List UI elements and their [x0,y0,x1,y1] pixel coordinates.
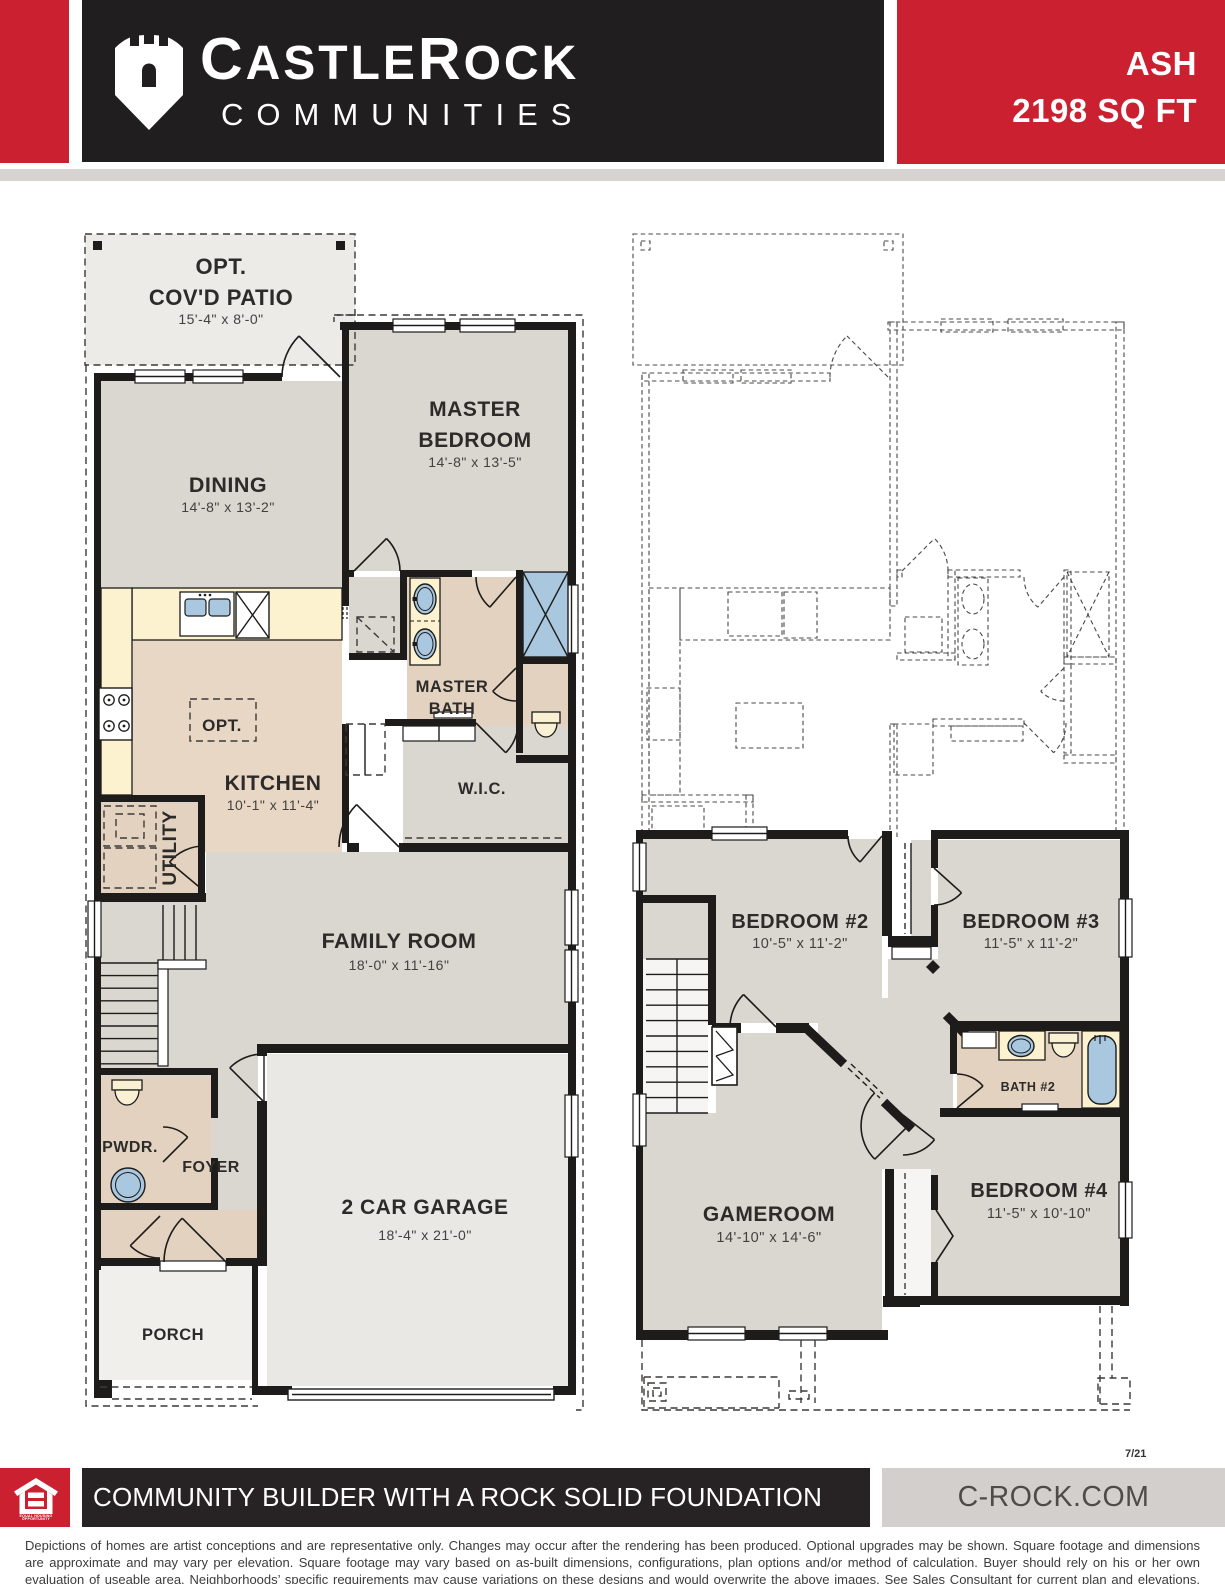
svg-text:MASTER: MASTER [416,678,489,696]
svg-text:MASTER: MASTER [429,398,521,421]
svg-text:10'-5" x 11'-2": 10'-5" x 11'-2" [752,936,848,952]
svg-text:PWDR.: PWDR. [102,1139,158,1156]
svg-text:UTILITY: UTILITY [160,810,181,885]
svg-text:PORCH: PORCH [142,1326,204,1344]
svg-text:10'-1" x 11'-4": 10'-1" x 11'-4" [227,797,320,813]
svg-text:2 CAR GARAGE: 2 CAR GARAGE [341,1196,508,1219]
svg-text:BATH: BATH [429,700,476,718]
svg-text:FOYER: FOYER [182,1159,240,1176]
svg-text:14'-8" x 13'-5": 14'-8" x 13'-5" [428,454,522,470]
svg-text:DINING: DINING [189,473,267,497]
svg-text:OPT.: OPT. [196,254,247,279]
svg-text:OPT.: OPT. [202,716,242,735]
svg-text:14'-8" x 13'-2": 14'-8" x 13'-2" [181,499,275,515]
svg-text:BEDROOM #3: BEDROOM #3 [962,911,1099,933]
svg-text:11'-5" x 10'-10": 11'-5" x 10'-10" [987,1206,1091,1222]
svg-text:OPPORTUNITY: OPPORTUNITY [22,1517,51,1520]
svg-text:BEDROOM: BEDROOM [418,429,531,452]
svg-text:GAMEROOM: GAMEROOM [703,1203,835,1226]
svg-text:W.I.C.: W.I.C. [458,780,506,798]
svg-text:BEDROOM #2: BEDROOM #2 [731,911,868,933]
svg-text:18'-0" x 11'-16": 18'-0" x 11'-16" [349,957,450,973]
svg-text:BEDROOM #4: BEDROOM #4 [970,1180,1108,1202]
svg-text:15'-4" x 8'-0": 15'-4" x 8'-0" [178,311,263,327]
svg-text:FAMILY ROOM: FAMILY ROOM [322,929,477,953]
svg-text:14'-10" x 14'-6": 14'-10" x 14'-6" [716,1230,821,1246]
svg-text:18'-4" x 21'-0": 18'-4" x 21'-0" [378,1227,472,1243]
svg-text:11'-5" x 11'-2": 11'-5" x 11'-2" [984,936,1079,952]
svg-text:KITCHEN: KITCHEN [225,772,322,795]
svg-text:COV'D PATIO: COV'D PATIO [149,285,293,310]
svg-text:BATH #2: BATH #2 [1001,1080,1056,1094]
